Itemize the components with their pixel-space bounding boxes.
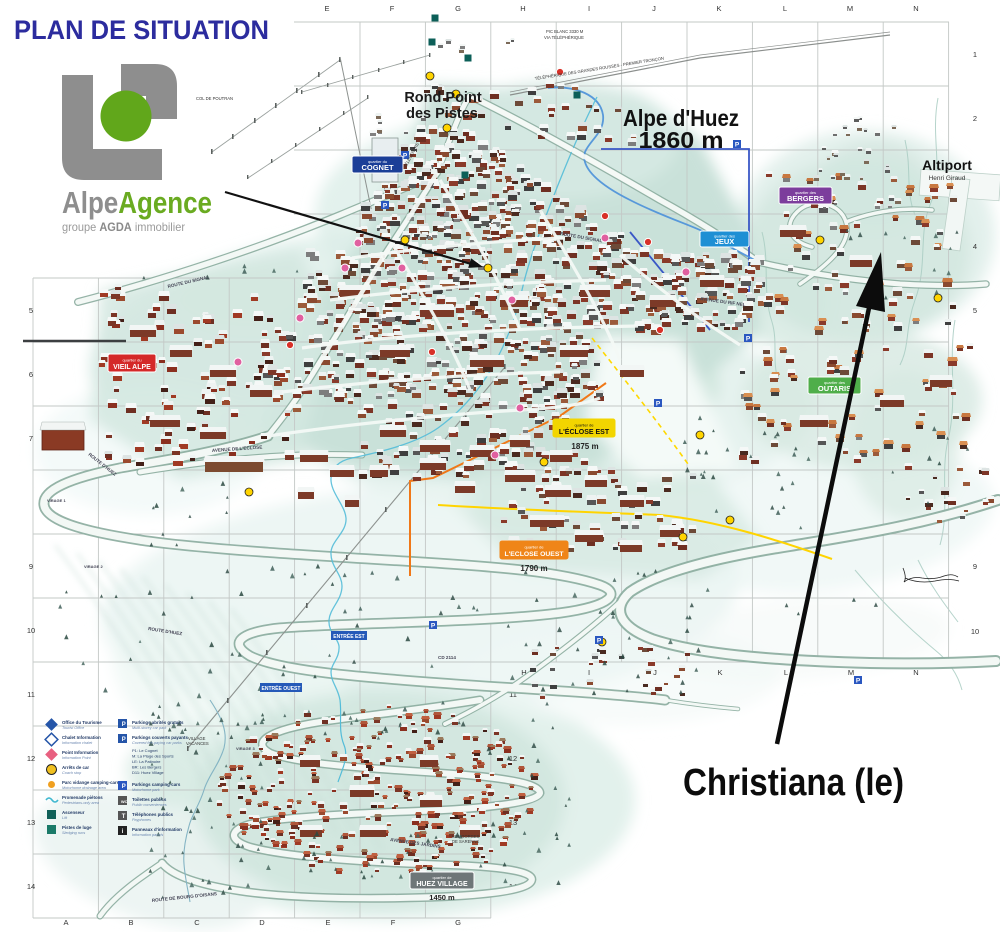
svg-text:2: 2 bbox=[973, 114, 977, 123]
svg-text:1790 m: 1790 m bbox=[520, 564, 547, 573]
svg-text:Information panels: Information panels bbox=[132, 833, 163, 837]
svg-text:P1: Le Cognet: P1: Le Cognet bbox=[132, 748, 158, 753]
svg-text:P: P bbox=[656, 401, 661, 408]
svg-text:BERGERS: BERGERS bbox=[787, 194, 824, 203]
svg-text:10: 10 bbox=[27, 626, 35, 635]
svg-text:B: B bbox=[128, 918, 133, 927]
svg-text:Panneaux d'information: Panneaux d'information bbox=[132, 827, 182, 832]
svg-text:1450 m: 1450 m bbox=[429, 893, 455, 902]
svg-text:P: P bbox=[597, 638, 602, 645]
svg-text:COL DE POUTRAN: COL DE POUTRAN bbox=[196, 96, 233, 101]
svg-text:N: N bbox=[913, 4, 918, 13]
svg-text:LE: La Patinoire: LE: La Patinoire bbox=[132, 759, 161, 764]
svg-text:VIEIL ALPE: VIEIL ALPE bbox=[113, 364, 151, 371]
svg-text:6: 6 bbox=[29, 370, 33, 379]
svg-text:14: 14 bbox=[27, 882, 35, 891]
svg-text:K: K bbox=[717, 668, 722, 677]
svg-text:F: F bbox=[390, 4, 395, 13]
svg-text:Motorhome drainage area: Motorhome drainage area bbox=[62, 786, 106, 790]
svg-text:1875 m: 1875 m bbox=[571, 442, 598, 451]
svg-text:P: P bbox=[856, 678, 861, 685]
svg-text:Pedestrians-only area: Pedestrians-only area bbox=[62, 801, 99, 805]
svg-text:VIRAGE 2: VIRAGE 2 bbox=[84, 564, 103, 569]
svg-text:E: E bbox=[324, 4, 329, 13]
svg-text:VIRAGE 3: VIRAGE 3 bbox=[236, 746, 255, 751]
svg-text:Rond Point: Rond Point bbox=[404, 90, 481, 106]
svg-text:P: P bbox=[735, 142, 740, 149]
svg-text:Parkings couverts payants: Parkings couverts payants bbox=[132, 735, 188, 740]
svg-text:CD 2114: CD 2114 bbox=[438, 655, 456, 660]
svg-text:Sledging runs: Sledging runs bbox=[62, 831, 85, 835]
svg-text:H: H bbox=[520, 4, 525, 13]
svg-text:ENTRÉE EST: ENTRÉE EST bbox=[333, 632, 364, 640]
svg-text:Parc vidange camping-cars: Parc vidange camping-cars bbox=[62, 780, 120, 785]
svg-text:Toilettes publics: Toilettes publics bbox=[132, 797, 167, 802]
svg-text:Parkings camping-cars: Parkings camping-cars bbox=[132, 782, 181, 787]
svg-text:Information chalet: Information chalet bbox=[62, 741, 93, 745]
svg-text:1860 m: 1860 m bbox=[639, 127, 724, 153]
svg-text:OUTARIS: OUTARIS bbox=[818, 384, 851, 393]
svg-text:J: J bbox=[653, 668, 657, 677]
svg-text:VACANCES: VACANCES bbox=[186, 741, 209, 746]
svg-text:Point Information: Point Information bbox=[62, 750, 99, 755]
svg-text:JEUX: JEUX bbox=[715, 237, 735, 246]
svg-text:Coach stop: Coach stop bbox=[62, 771, 81, 775]
svg-text:Payphones: Payphones bbox=[132, 818, 151, 822]
svg-text:quartier du: quartier du bbox=[122, 358, 141, 363]
svg-text:5: 5 bbox=[29, 306, 33, 315]
svg-text:quartier de: quartier de bbox=[524, 545, 544, 550]
svg-text:L: L bbox=[783, 4, 787, 13]
svg-text:Tourist Office: Tourist Office bbox=[62, 726, 84, 730]
svg-text:9: 9 bbox=[29, 562, 33, 571]
svg-text:Arrêts de car: Arrêts de car bbox=[62, 765, 89, 770]
svg-text:P: P bbox=[122, 722, 126, 728]
svg-text:Multi-storey car park: Multi-storey car park bbox=[132, 726, 167, 730]
svg-text:Ascenseur: Ascenseur bbox=[62, 810, 85, 815]
svg-text:C: C bbox=[194, 918, 200, 927]
svg-text:I: I bbox=[588, 668, 590, 677]
svg-text:5: 5 bbox=[973, 306, 977, 315]
svg-text:10: 10 bbox=[971, 627, 979, 636]
svg-text:T: T bbox=[122, 814, 126, 820]
svg-text:Office du Tourisme: Office du Tourisme bbox=[62, 720, 102, 725]
svg-text:Chalet Information: Chalet Information bbox=[62, 735, 101, 740]
svg-text:P: P bbox=[431, 623, 436, 630]
svg-text:L'ÉCLOSE EST: L'ÉCLOSE EST bbox=[559, 427, 610, 436]
svg-text:K: K bbox=[716, 4, 721, 13]
svg-text:P: P bbox=[383, 203, 388, 210]
svg-text:D11: Huez Village: D11: Huez Village bbox=[132, 770, 164, 775]
svg-text:quartier de: quartier de bbox=[432, 875, 452, 880]
svg-text:P: P bbox=[122, 784, 126, 790]
svg-text:VIRAGE 1: VIRAGE 1 bbox=[47, 498, 66, 503]
svg-text:Altiport: Altiport bbox=[922, 157, 972, 173]
svg-text:Covered fee-paying car parks: Covered fee-paying car parks bbox=[132, 741, 182, 745]
svg-text:4: 4 bbox=[973, 242, 977, 251]
svg-text:M: La Plage des Sports: M: La Plage des Sports bbox=[132, 754, 174, 759]
svg-text:des Pistes: des Pistes bbox=[406, 106, 478, 122]
svg-text:VIA TÉLÉPHÉRIQUE: VIA TÉLÉPHÉRIQUE bbox=[544, 35, 584, 40]
svg-text:7: 7 bbox=[29, 434, 33, 443]
svg-text:WC: WC bbox=[121, 799, 128, 804]
svg-text:9: 9 bbox=[973, 562, 977, 571]
svg-text:F: F bbox=[391, 918, 396, 927]
svg-text:12: 12 bbox=[27, 754, 35, 763]
svg-text:AlpeAgence: AlpeAgence bbox=[62, 185, 212, 220]
svg-text:Pistes de luge: Pistes de luge bbox=[62, 825, 92, 830]
svg-text:Christiana (le): Christiana (le) bbox=[683, 762, 904, 804]
svg-text:ENTRÉE OUEST: ENTRÉE OUEST bbox=[262, 684, 301, 692]
svg-text:L: L bbox=[784, 668, 788, 677]
svg-text:13: 13 bbox=[27, 818, 35, 827]
svg-text:G: G bbox=[455, 4, 461, 13]
svg-text:PIC BLANC 3330 M: PIC BLANC 3330 M bbox=[546, 29, 584, 34]
svg-text:groupe AGDA immobilier: groupe AGDA immobilier bbox=[62, 220, 185, 234]
svg-text:Promenade piétons: Promenade piétons bbox=[62, 795, 103, 800]
svg-text:HUEZ VILLAGE: HUEZ VILLAGE bbox=[416, 881, 468, 888]
svg-text:Information Point: Information Point bbox=[62, 756, 92, 760]
svg-text:PLAN DE SITUATION: PLAN DE SITUATION bbox=[14, 15, 269, 45]
svg-text:D: D bbox=[259, 918, 265, 927]
svg-text:M: M bbox=[848, 668, 854, 677]
svg-text:1: 1 bbox=[973, 50, 977, 59]
svg-text:Public conveniences: Public conveniences bbox=[132, 803, 167, 807]
svg-text:Motorhome park: Motorhome park bbox=[132, 788, 161, 792]
svg-text:I: I bbox=[588, 4, 590, 13]
svg-text:COGNET: COGNET bbox=[361, 163, 394, 172]
svg-text:J: J bbox=[652, 4, 656, 13]
svg-text:A: A bbox=[63, 918, 68, 927]
svg-text:DE SARENNE: DE SARENNE bbox=[452, 839, 479, 844]
svg-text:Henri Giraud: Henri Giraud bbox=[929, 175, 966, 182]
svg-text:BR: Les Bergers: BR: Les Bergers bbox=[132, 765, 161, 770]
svg-text:L'ECLOSE OUEST: L'ECLOSE OUEST bbox=[504, 551, 564, 558]
svg-text:Parkings abrités gratuits: Parkings abrités gratuits bbox=[132, 720, 184, 725]
svg-text:E: E bbox=[325, 918, 330, 927]
svg-text:Téléphones publics: Téléphones publics bbox=[132, 812, 174, 817]
svg-text:M: M bbox=[847, 4, 853, 13]
svg-text:P: P bbox=[122, 737, 126, 743]
svg-text:G: G bbox=[455, 918, 461, 927]
svg-text:quartier de: quartier de bbox=[574, 423, 594, 428]
svg-text:11: 11 bbox=[27, 690, 35, 699]
svg-text:P: P bbox=[746, 336, 751, 343]
